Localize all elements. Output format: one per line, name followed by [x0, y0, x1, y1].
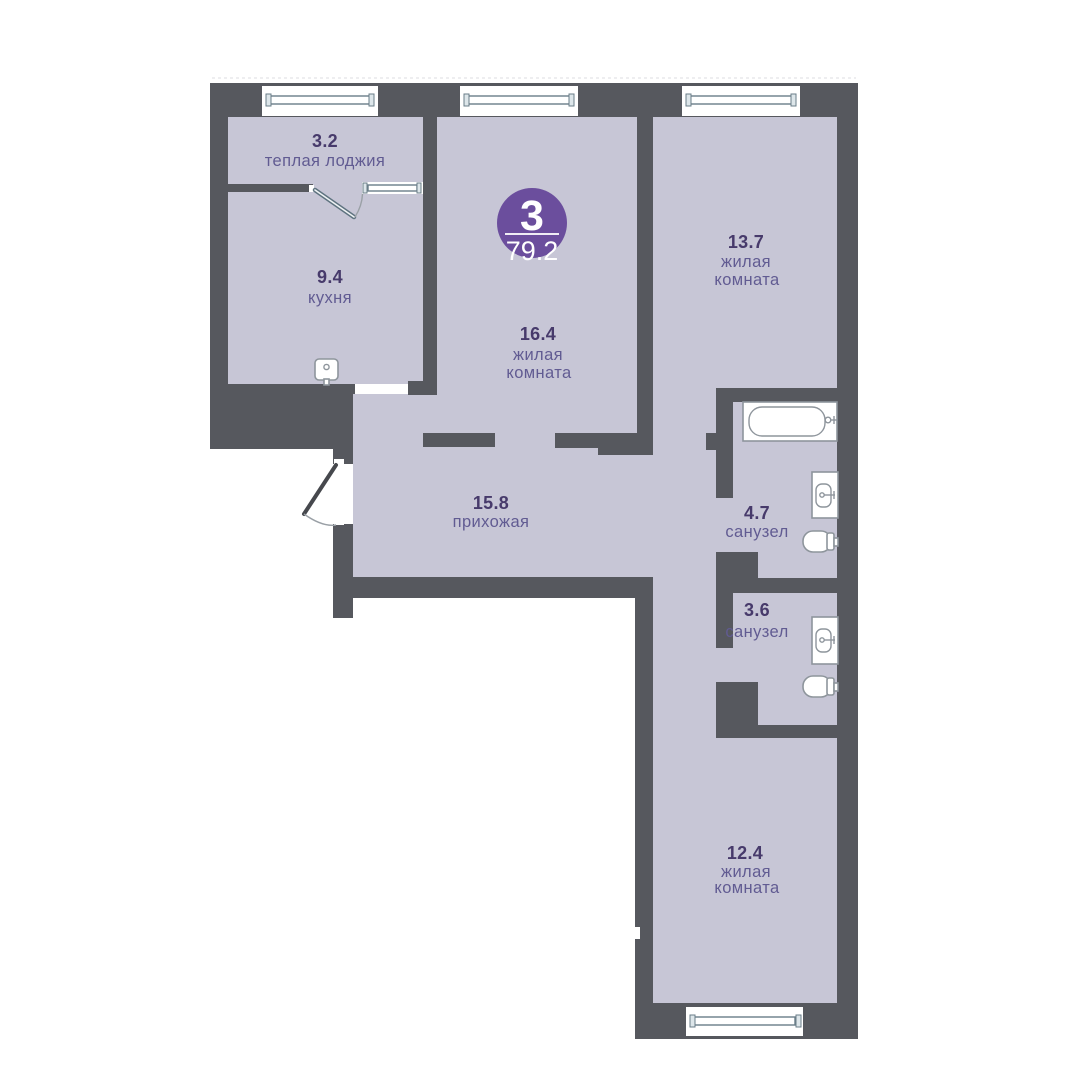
wall-entrance-lower: [333, 524, 353, 577]
wall-bath-divider: [716, 578, 837, 593]
wall-right: [837, 83, 858, 1039]
wall-left: [210, 83, 228, 394]
toilet-icon: [803, 531, 838, 552]
badge-total-area: 79.2: [506, 236, 559, 266]
wall-living16-bottom-step: [598, 433, 653, 455]
room-area-label: 12.4: [727, 843, 763, 863]
wall-bath-large-left: [716, 402, 733, 498]
wall-corridor-left: [635, 577, 653, 1003]
wall-kitchen-block: [210, 394, 334, 449]
badge-room-count: 3: [520, 192, 544, 240]
wall-kitchen-bottom: [228, 384, 355, 394]
wall-kitchen-nub: [408, 381, 423, 395]
wall-notch: [634, 927, 640, 939]
apartment-badge: 3 79.2: [497, 188, 567, 266]
room-name-label: санузел: [725, 623, 788, 641]
floor-living-middle: [437, 117, 637, 433]
wall-bath-small-block: [716, 682, 758, 738]
wall-bath-top: [716, 388, 837, 402]
sink-icon: [812, 472, 838, 518]
floor-plan-page: 3.2 теплая лоджия 9.4 кухня 16.4 жилая к…: [0, 0, 1080, 1080]
room-name-label: теплая лоджия: [265, 152, 385, 170]
floor-plan: 3.2 теплая лоджия 9.4 кухня 16.4 жилая к…: [0, 0, 1080, 1080]
wall-living16-bottom-left: [423, 433, 495, 447]
room-area-label: 4.7: [744, 503, 770, 523]
wall-bath-small-bottom: [758, 725, 837, 738]
room-name-label: кухня: [308, 289, 352, 307]
room-area-label: 13.7: [728, 232, 764, 252]
room-name-label: комната: [714, 879, 780, 897]
room-area-label: 9.4: [317, 267, 343, 287]
wall-bath-divider-block: [716, 552, 758, 578]
wall-loggia-divider: [228, 184, 313, 192]
room-name-label: комната: [506, 364, 572, 382]
room-area-label: 3.6: [744, 600, 770, 620]
toilet-icon: [803, 676, 838, 697]
sink-icon: [812, 617, 838, 664]
wall-living-divider: [637, 83, 653, 433]
room-area-label: 16.4: [520, 324, 556, 344]
room-name-label: жилая: [721, 253, 771, 271]
room-name-label: прихожая: [453, 513, 530, 531]
wall-corridor-nub: [706, 433, 718, 450]
window-icon: [460, 86, 578, 116]
window-icon: [686, 1007, 803, 1036]
bathtub-icon: [743, 402, 837, 441]
wall-entrance-upper: [333, 394, 353, 464]
floor-hallway: [353, 394, 653, 577]
window-icon: [682, 86, 800, 116]
wall-hall-stub: [333, 598, 353, 618]
loggia-window-icon: [362, 182, 423, 194]
wall-hall-bottom: [333, 577, 653, 598]
window-icon: [262, 86, 378, 116]
room-name-label: комната: [714, 271, 780, 289]
room-area-label: 15.8: [473, 493, 509, 513]
wall-kitchen-living: [423, 83, 437, 395]
room-name-label: санузел: [725, 523, 788, 541]
room-area-label: 3.2: [312, 131, 338, 151]
entrance-door-icon: [304, 459, 344, 525]
room-name-label: жилая: [513, 346, 563, 364]
